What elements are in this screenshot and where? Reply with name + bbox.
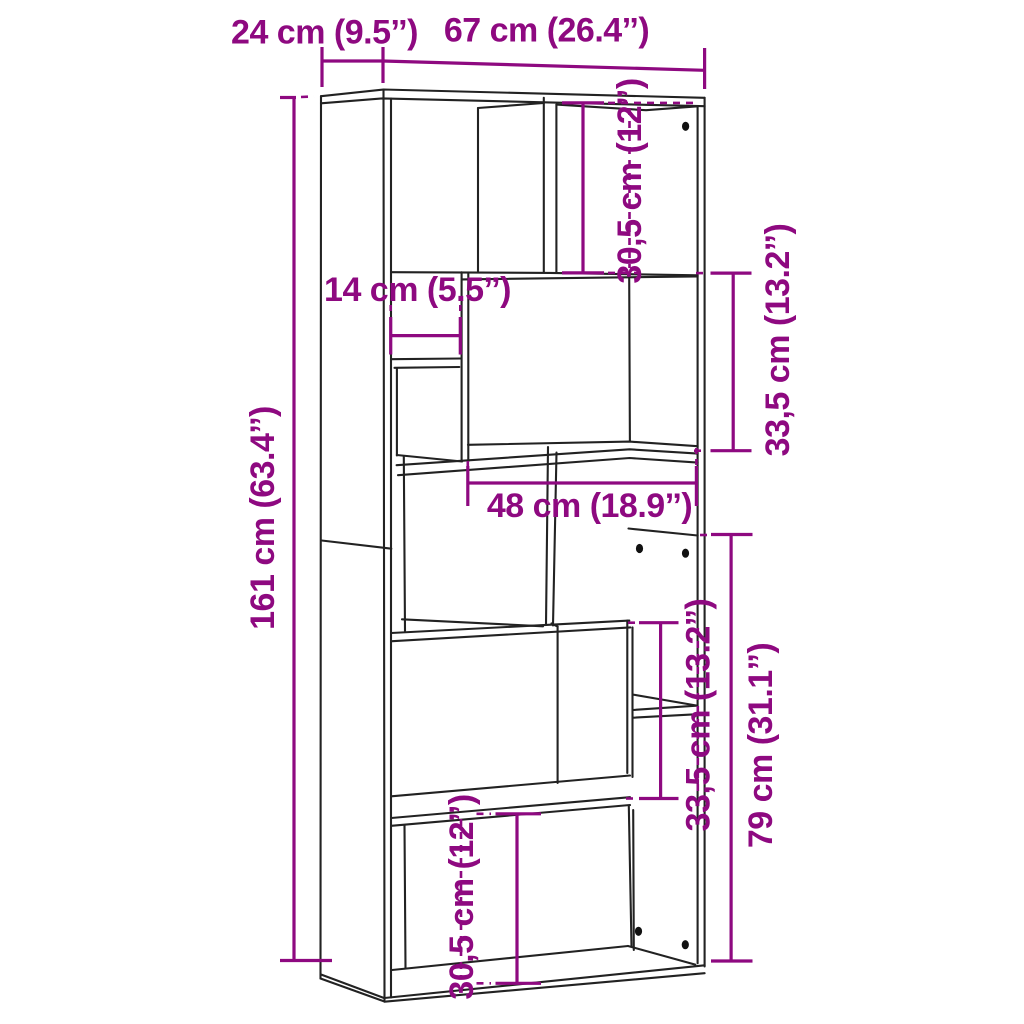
svg-text:30,5 cm (12’’): 30,5 cm (12’’): [611, 78, 649, 283]
svg-text:67 cm (26.4’’): 67 cm (26.4’’): [444, 12, 649, 50]
svg-text:48 cm (18.9’’): 48 cm (18.9’’): [487, 487, 692, 525]
svg-text:33,5 cm (13.2’’): 33,5 cm (13.2’’): [759, 224, 797, 457]
svg-text:33,5 cm (13.2’’): 33,5 cm (13.2’’): [680, 599, 718, 832]
svg-text:161 cm (63.4’’): 161 cm (63.4’’): [244, 406, 282, 630]
svg-text:79 cm (31.1’’): 79 cm (31.1’’): [742, 643, 780, 848]
svg-text:24 cm (9.5’’): 24 cm (9.5’’): [231, 14, 418, 52]
svg-text:14 cm (5.5’’): 14 cm (5.5’’): [324, 271, 511, 309]
svg-text:30,5 cm (12’’): 30,5 cm (12’’): [443, 794, 481, 999]
